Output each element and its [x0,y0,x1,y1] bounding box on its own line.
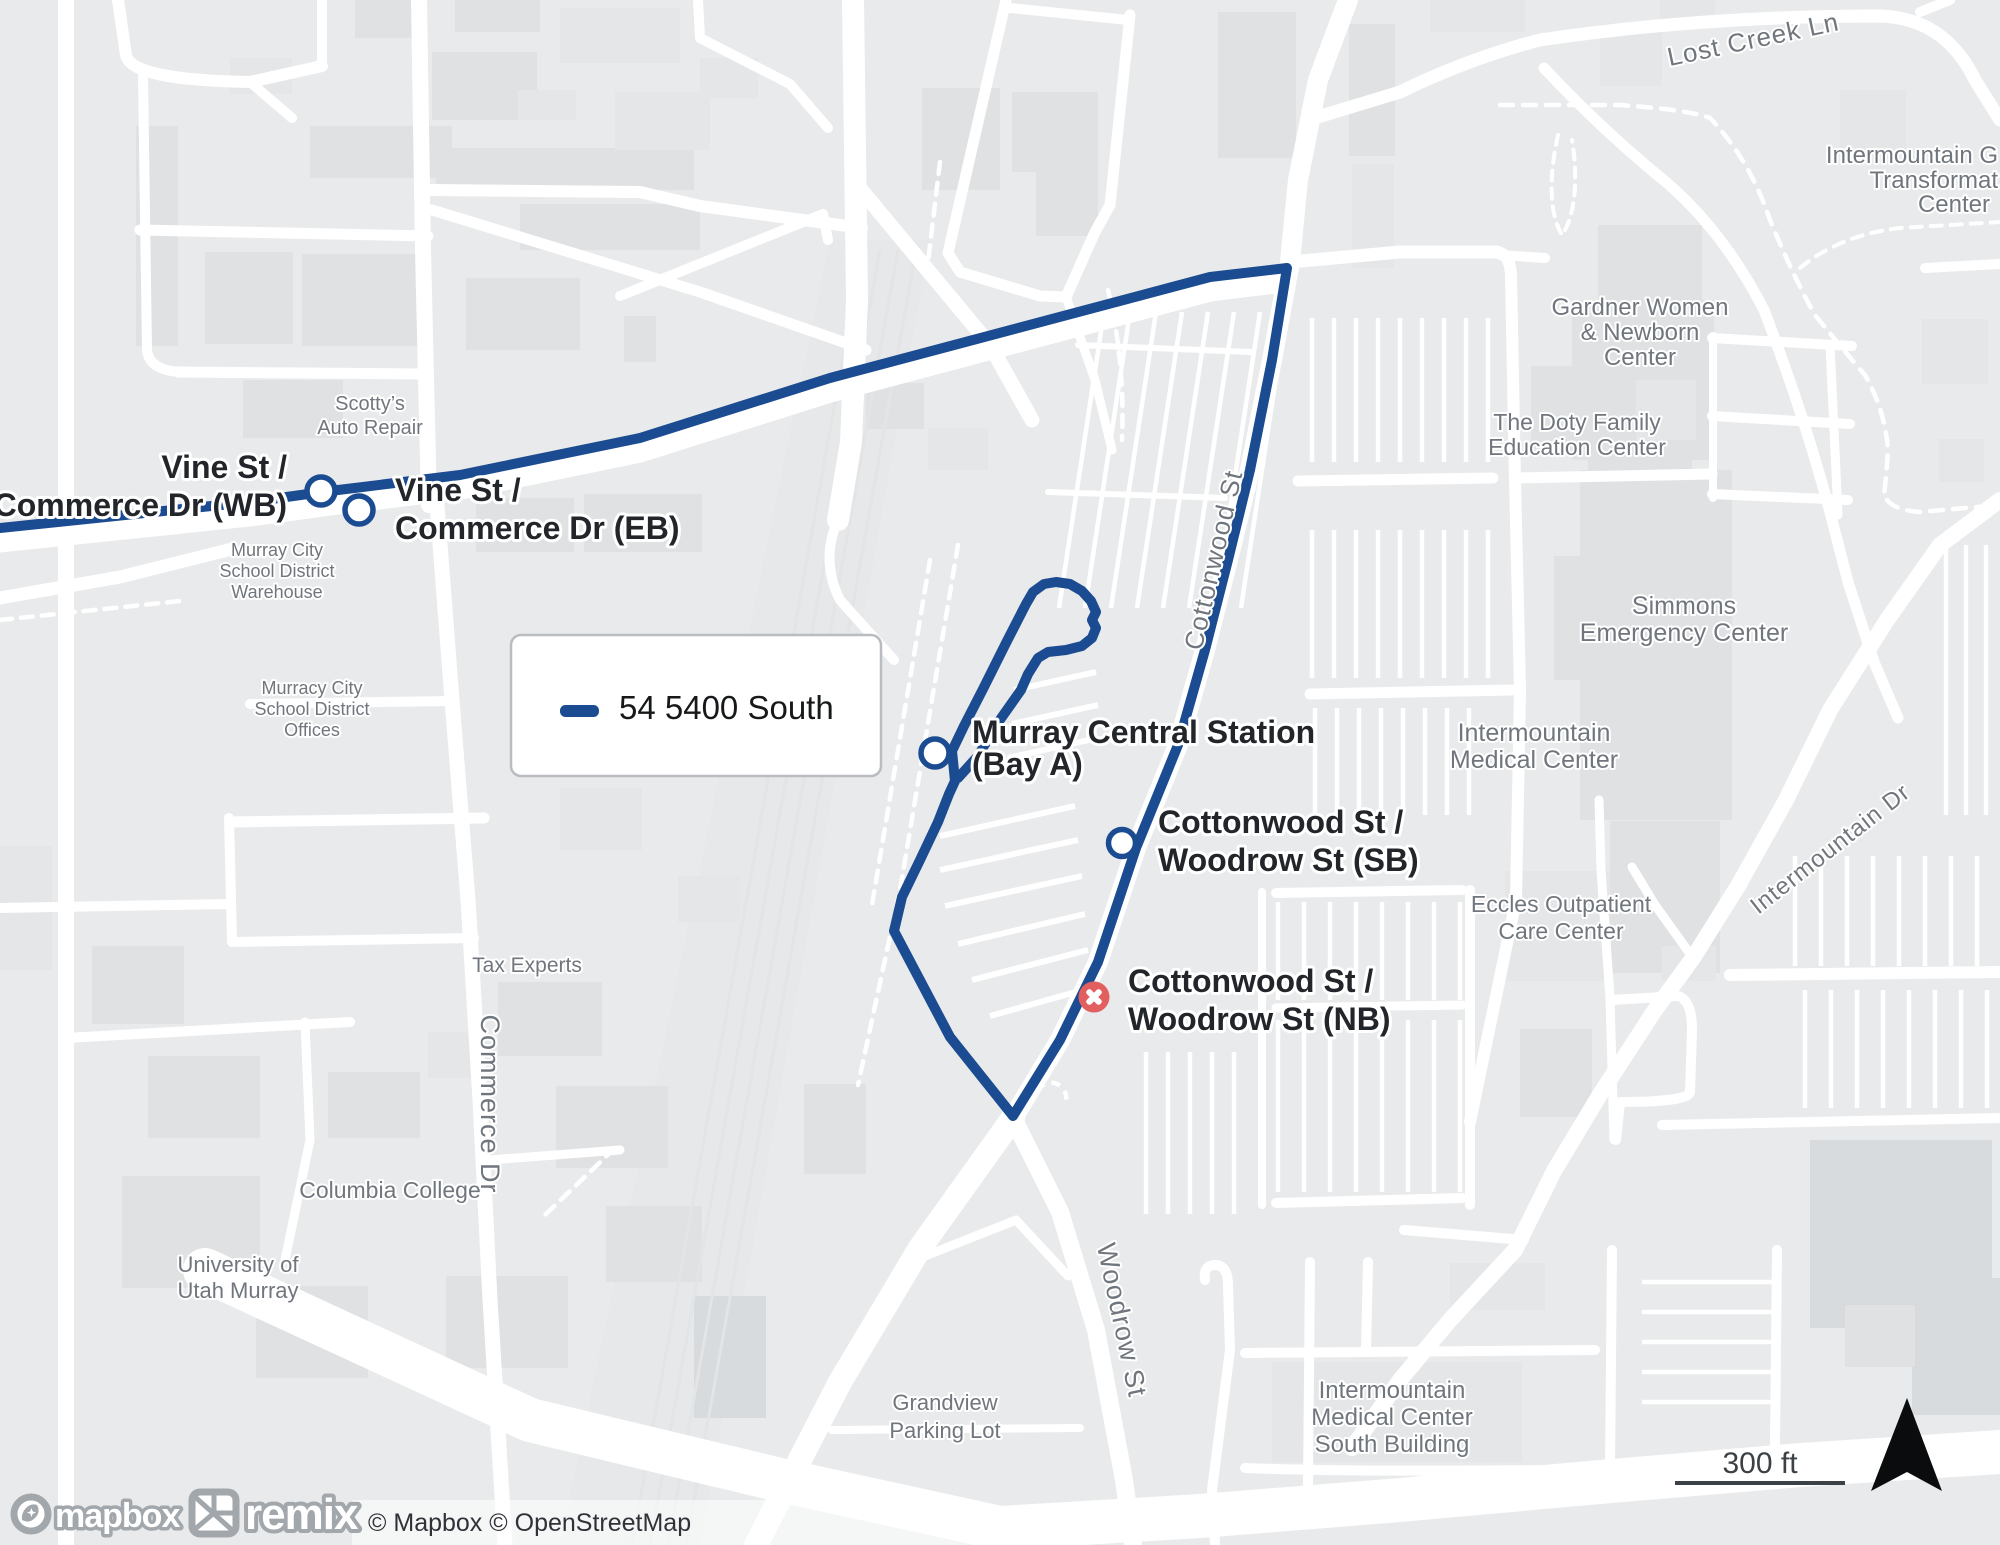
svg-text:remix: remix [245,1490,359,1539]
svg-text:Medical Center: Medical Center [1450,746,1618,774]
svg-text:Gardner Women: Gardner Women [1552,294,1729,321]
svg-text:Vine St /: Vine St / [395,472,521,508]
svg-text:University of: University of [177,1252,299,1277]
svg-text:Woodrow St (SB): Woodrow St (SB) [1158,842,1419,878]
svg-text:Commerce Dr (WB): Commerce Dr (WB) [0,487,287,523]
svg-text:Center: Center [1604,344,1676,371]
svg-text:© Mapbox © OpenStreetMap: © Mapbox © OpenStreetMap [368,1509,691,1537]
svg-text:Tax Experts: Tax Experts [472,954,582,977]
svg-text:Murray City: Murray City [231,540,323,560]
svg-text:Parking Lot: Parking Lot [889,1418,1000,1443]
svg-text:Woodrow St (NB): Woodrow St (NB) [1128,1001,1390,1037]
svg-text:Center: Center [1918,191,1990,218]
svg-text:Grandview: Grandview [892,1390,997,1415]
svg-text:300 ft: 300 ft [1722,1447,1798,1480]
svg-text:Emergency Center: Emergency Center [1580,619,1788,647]
svg-text:Utah Murray: Utah Murray [177,1278,298,1303]
svg-text:Commerce Dr: Commerce Dr [475,1014,505,1193]
svg-text:The Doty Family: The Doty Family [1493,409,1661,435]
svg-text:Scotty’s: Scotty’s [335,393,405,415]
svg-text:Intermountain: Intermountain [1319,1377,1466,1404]
svg-text:Commerce Dr (EB): Commerce Dr (EB) [395,510,680,546]
svg-text:Simmons: Simmons [1632,592,1736,620]
svg-text:Offices: Offices [284,720,340,740]
svg-text:Care Center: Care Center [1498,918,1624,944]
svg-text:School District: School District [219,561,334,581]
svg-text:Intermountain G: Intermountain G [1826,142,1998,169]
svg-text:Vine St /: Vine St / [161,449,287,485]
svg-text:South Building: South Building [1315,1431,1470,1458]
svg-text:54 5400 South: 54 5400 South [619,689,834,726]
svg-text:Columbia College: Columbia College [299,1177,481,1203]
svg-text:Cottonwood St /: Cottonwood St / [1158,804,1403,840]
svg-text:Cottonwood St /: Cottonwood St / [1128,963,1373,999]
svg-text:Warehouse: Warehouse [231,582,322,602]
svg-text:Murray Central Station: Murray Central Station [972,714,1315,750]
svg-text:Transformat: Transformat [1870,167,1999,194]
svg-text:School District: School District [254,699,369,719]
svg-text:Medical Center: Medical Center [1311,1404,1472,1431]
svg-text:mapbox: mapbox [55,1497,180,1535]
svg-text:Education Center: Education Center [1488,434,1666,460]
svg-text:Eccles Outpatient: Eccles Outpatient [1471,891,1652,917]
svg-text:Intermountain: Intermountain [1458,719,1611,747]
svg-text:(Bay A): (Bay A) [972,746,1083,782]
svg-text:& Newborn: & Newborn [1581,319,1700,346]
svg-text:Auto Repair: Auto Repair [317,417,423,439]
svg-text:Murracy City: Murracy City [261,678,362,698]
